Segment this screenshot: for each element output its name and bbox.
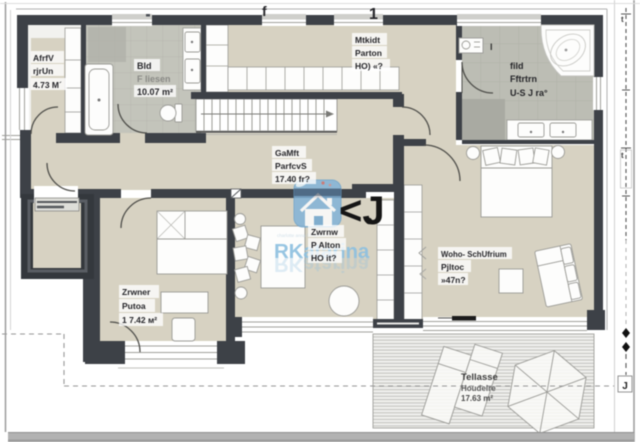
svg-text:AfrfV: AfrfV xyxy=(33,53,54,63)
svg-text:Mtkidt: Mtkidt xyxy=(355,35,380,45)
svg-text:17.40 fr?: 17.40 fr? xyxy=(275,174,310,184)
svg-text:ParfcvS: ParfcvS xyxy=(275,161,307,171)
svg-text:Bld: Bld xyxy=(137,61,152,71)
svg-text:t: t xyxy=(621,15,624,24)
svg-text:1: 1 xyxy=(369,6,378,23)
svg-text:4.73 M´: 4.73 M´ xyxy=(33,80,62,90)
svg-text:<J: <J xyxy=(339,189,385,233)
svg-text:Zwrnw: Zwrnw xyxy=(311,227,338,237)
svg-text:U-S J ra°: U-S J ra° xyxy=(510,88,548,98)
svg-text:GaMft: GaMft xyxy=(275,148,299,158)
svg-text:Zrwner: Zrwner xyxy=(122,287,151,297)
svg-text:t: t xyxy=(621,151,624,160)
svg-text:f: f xyxy=(262,3,267,19)
svg-text:10.07 m²: 10.07 m² xyxy=(137,87,173,97)
svg-text:J: J xyxy=(622,381,628,392)
svg-text:F liesen: F liesen xyxy=(137,74,171,84)
svg-text:17.63 m²: 17.63 m² xyxy=(461,394,493,403)
svg-text:»47n?: »47n? xyxy=(441,275,466,285)
svg-text:Tellasse: Tellasse xyxy=(461,372,498,383)
svg-text:I: I xyxy=(490,42,493,52)
svg-text:Fftrtrn: Fftrtrn xyxy=(510,74,537,84)
svg-text:Houdelre: Houdelre xyxy=(461,384,496,393)
svg-text:Putoa: Putoa xyxy=(122,301,146,311)
svg-text:fild: fild xyxy=(510,61,524,71)
svg-text:Woho- SchUfrium: Woho- SchUfrium xyxy=(441,250,507,259)
svg-text:P Alton: P Alton xyxy=(311,240,340,250)
svg-text:Pjltoc: Pjltoc xyxy=(441,262,464,272)
svg-text:Parton: Parton xyxy=(355,48,382,58)
svg-text:HO it?: HO it? xyxy=(311,253,337,263)
svg-text:1 7.42 м²: 1 7.42 м² xyxy=(122,315,157,325)
svg-text:rjrUn: rjrUn xyxy=(33,66,53,76)
svg-text:HO) «?: HO) «? xyxy=(355,61,383,71)
